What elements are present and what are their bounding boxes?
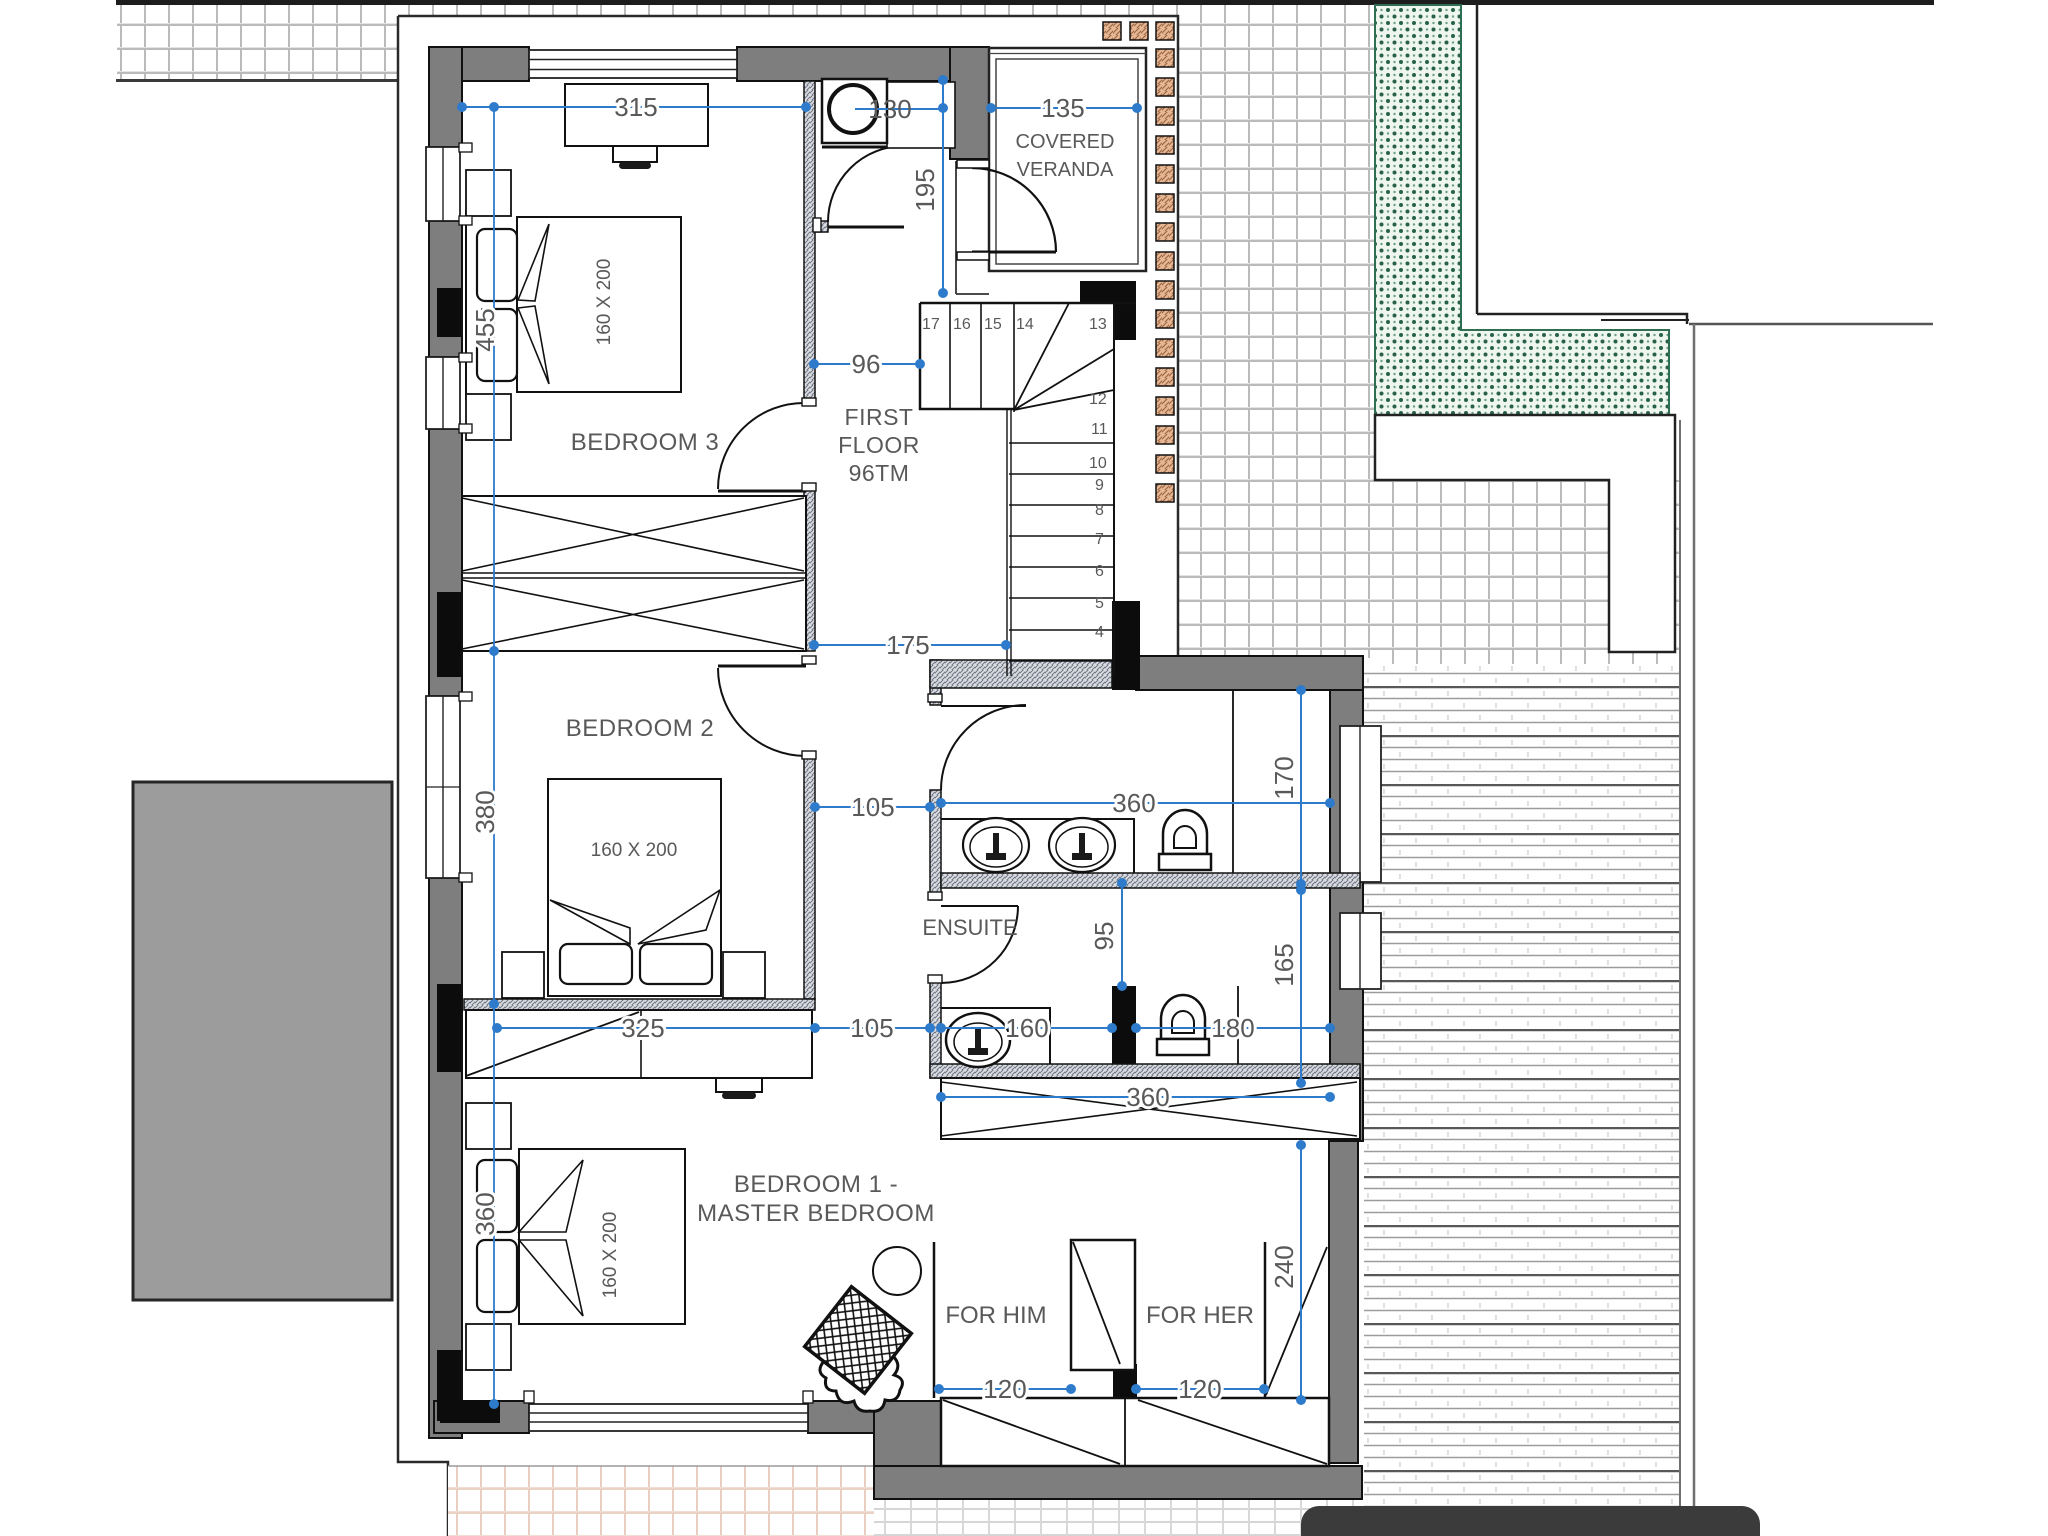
svg-text:160 X 200: 160 X 200 (594, 259, 615, 346)
svg-text:6: 6 (1095, 563, 1104, 580)
svg-text:360: 360 (1126, 1082, 1169, 1112)
svg-text:380: 380 (470, 790, 500, 833)
svg-text:240: 240 (1269, 1245, 1299, 1288)
svg-text:14: 14 (1016, 316, 1034, 333)
svg-text:96: 96 (852, 349, 881, 379)
svg-text:105: 105 (851, 792, 894, 822)
svg-text:135: 135 (1041, 93, 1084, 123)
svg-text:315: 315 (614, 92, 657, 122)
svg-text:16: 16 (953, 316, 971, 333)
svg-text:160: 160 (1005, 1013, 1048, 1043)
svg-text:195: 195 (910, 168, 940, 211)
svg-text:180: 180 (1211, 1013, 1254, 1043)
svg-text:455: 455 (470, 308, 500, 351)
svg-text:FOR HIM: FOR HIM (945, 1302, 1046, 1329)
svg-text:COVERED: COVERED (1016, 131, 1115, 153)
svg-text:FLOOR: FLOOR (838, 432, 920, 458)
svg-text:5: 5 (1095, 595, 1104, 612)
svg-text:96TM: 96TM (849, 460, 910, 486)
svg-text:BEDROOM 1 -: BEDROOM 1 - (734, 1171, 898, 1198)
svg-text:13: 13 (1089, 316, 1107, 333)
svg-text:160 X 200: 160 X 200 (600, 1212, 621, 1299)
svg-text:130: 130 (868, 94, 911, 124)
svg-text:160 X 200: 160 X 200 (591, 840, 678, 861)
svg-text:10: 10 (1089, 455, 1107, 472)
svg-text:360: 360 (470, 1192, 500, 1235)
svg-text:17: 17 (922, 316, 940, 333)
svg-text:ENSUITE: ENSUITE (922, 915, 1017, 940)
svg-text:175: 175 (886, 630, 929, 660)
svg-text:4: 4 (1095, 624, 1104, 641)
svg-text:BEDROOM 2: BEDROOM 2 (566, 715, 715, 742)
svg-text:11: 11 (1091, 421, 1108, 438)
svg-text:8: 8 (1095, 502, 1104, 519)
svg-text:120: 120 (1178, 1374, 1221, 1404)
svg-text:120: 120 (983, 1374, 1026, 1404)
svg-text:9: 9 (1095, 477, 1104, 494)
svg-text:360: 360 (1112, 788, 1155, 818)
svg-text:7: 7 (1095, 531, 1104, 548)
svg-text:12: 12 (1089, 391, 1107, 408)
svg-text:BEDROOM 3: BEDROOM 3 (571, 429, 720, 456)
svg-text:95: 95 (1089, 922, 1119, 951)
svg-text:15: 15 (984, 316, 1002, 333)
svg-text:325: 325 (621, 1013, 664, 1043)
svg-text:VERANDA: VERANDA (1017, 159, 1114, 181)
svg-text:170: 170 (1269, 756, 1299, 799)
svg-text:165: 165 (1269, 943, 1299, 986)
svg-text:FOR HER: FOR HER (1146, 1302, 1254, 1329)
svg-text:105: 105 (850, 1013, 893, 1043)
svg-text:FIRST: FIRST (845, 404, 914, 430)
svg-text:MASTER BEDROOM: MASTER BEDROOM (697, 1200, 935, 1227)
